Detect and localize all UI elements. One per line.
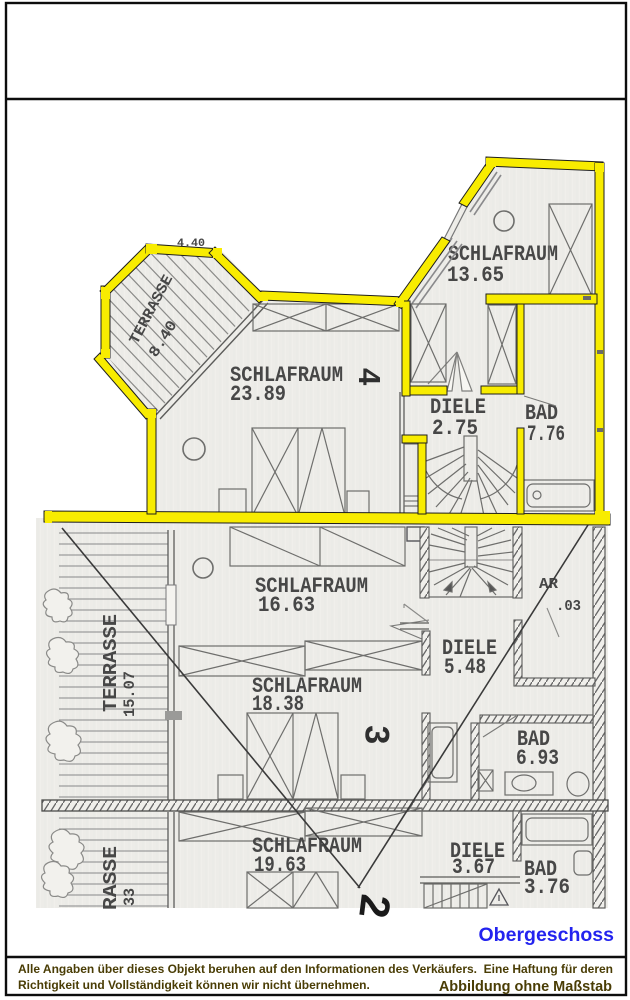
- svg-text:Obergeschoss: Obergeschoss: [479, 924, 615, 946]
- svg-text:6.93: 6.93: [516, 746, 559, 771]
- svg-text:4: 4: [352, 368, 387, 386]
- svg-text:RASSE: RASSE: [100, 846, 122, 910]
- svg-text:3.67: 3.67: [452, 855, 495, 880]
- svg-text:2.75: 2.75: [432, 416, 478, 441]
- svg-text:5.48: 5.48: [444, 655, 486, 680]
- svg-text:Richtigkeit und Vollständigkei: Richtigkeit und Vollständigkeit können w…: [18, 978, 370, 992]
- svg-text:7.76: 7.76: [527, 422, 565, 447]
- svg-text:19.63: 19.63: [254, 853, 306, 878]
- svg-text:23.89: 23.89: [230, 382, 286, 407]
- svg-text:TERRASSE: TERRASSE: [100, 614, 122, 712]
- svg-text:3.76: 3.76: [524, 875, 570, 900]
- svg-text:15.07: 15.07: [121, 671, 139, 717]
- svg-text:3: 3: [357, 725, 396, 745]
- svg-text:16.63: 16.63: [258, 593, 315, 618]
- svg-text:Abbildung ohne Maßstab: Abbildung ohne Maßstab: [439, 979, 612, 995]
- svg-text:AR: AR: [539, 576, 558, 593]
- svg-text:Alle Angaben über dieses Objek: Alle Angaben über dieses Objekt beruhen …: [18, 962, 613, 976]
- svg-text:.03: .03: [556, 598, 581, 615]
- svg-text:33: 33: [121, 888, 139, 906]
- svg-text:13.65: 13.65: [447, 263, 504, 288]
